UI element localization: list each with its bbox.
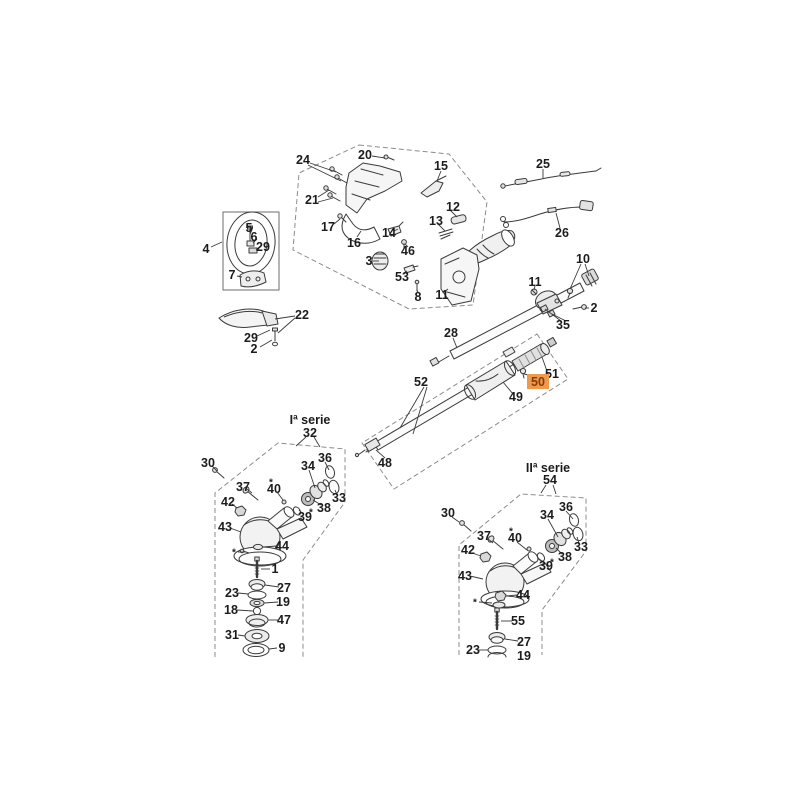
- part-label-13[interactable]: 13: [429, 214, 443, 228]
- leader-line: [211, 242, 222, 247]
- part-label-43-s2[interactable]: 43: [458, 569, 472, 583]
- part-label-38-s1[interactable]: 38: [317, 501, 331, 515]
- leader-line: [269, 648, 277, 649]
- part-label-23-s2[interactable]: 23: [466, 643, 480, 657]
- reference-mark-mark-44-s1: *: [232, 548, 236, 559]
- leader-line: [278, 318, 295, 333]
- part-label-38-s2[interactable]: 38: [558, 550, 572, 564]
- series-title-serie1: Iª serie: [290, 413, 331, 427]
- part-label-24[interactable]: 24: [296, 153, 310, 167]
- part-label-52[interactable]: 52: [414, 375, 428, 389]
- leader-line: [318, 198, 333, 202]
- part-label-37-s1[interactable]: 37: [236, 480, 250, 494]
- part-label-48[interactable]: 48: [378, 456, 392, 470]
- part-label-20[interactable]: 20: [358, 148, 372, 162]
- part-label-19-s1[interactable]: 19: [276, 595, 290, 609]
- part-label-46[interactable]: 46: [401, 244, 415, 258]
- reference-mark-mark-39-s1: *: [309, 508, 313, 519]
- part-label-9[interactable]: 9: [279, 641, 286, 655]
- part-label-50[interactable]: 50: [531, 375, 545, 389]
- part-label-8[interactable]: 8: [415, 290, 422, 304]
- part-label-26[interactable]: 26: [555, 226, 569, 240]
- part-label-35[interactable]: 35: [556, 318, 570, 332]
- part-label-19-s2[interactable]: 19: [517, 649, 531, 663]
- part-label-2-clamp[interactable]: 2: [591, 301, 598, 315]
- part-label-21[interactable]: 21: [305, 193, 319, 207]
- part-label-22[interactable]: 22: [295, 308, 309, 322]
- part-label-16[interactable]: 16: [347, 236, 361, 250]
- part-label-53[interactable]: 53: [395, 270, 409, 284]
- throttle-assembly-drawing: [324, 155, 517, 305]
- part-label-33-s1[interactable]: 33: [332, 491, 346, 505]
- part-label-42-s2[interactable]: 42: [461, 543, 475, 557]
- part-label-30-s1[interactable]: 30: [201, 456, 215, 470]
- part-label-27-s2[interactable]: 27: [517, 635, 531, 649]
- part-label-10[interactable]: 10: [576, 252, 590, 266]
- part-label-12[interactable]: 12: [446, 200, 460, 214]
- part-label-15[interactable]: 15: [434, 159, 448, 173]
- part-label-44-s1[interactable]: 44: [275, 539, 289, 553]
- part-label-11-clamp[interactable]: 11: [528, 275, 541, 289]
- reference-mark-mark-39-s2: *: [550, 558, 554, 569]
- part-label-2-guard[interactable]: 2: [251, 342, 258, 356]
- part-label-36-s1[interactable]: 36: [318, 451, 332, 465]
- part-label-31[interactable]: 31: [225, 628, 239, 642]
- part-label-7[interactable]: 7: [229, 268, 236, 282]
- part-label-27-s1[interactable]: 27: [277, 581, 291, 595]
- part-label-29-handle[interactable]: 29: [256, 240, 270, 254]
- leader-line: [237, 610, 253, 611]
- part-label-25[interactable]: 25: [536, 157, 550, 171]
- part-label-34-s2[interactable]: 34: [540, 508, 554, 522]
- part-label-34-s1[interactable]: 34: [301, 459, 315, 473]
- part-label-4[interactable]: 4: [203, 242, 210, 256]
- leader-line: [257, 330, 270, 336]
- parts-diagram-canvas: 2420152117161446121335381125264562972229…: [0, 0, 800, 800]
- leader-line: [238, 593, 248, 594]
- part-label-37-s2[interactable]: 37: [477, 529, 491, 543]
- part-label-23-s1[interactable]: 23: [225, 586, 239, 600]
- part-label-47[interactable]: 47: [277, 613, 291, 627]
- leader-line: [275, 316, 295, 319]
- reference-mark-mark-washer-s2: *: [473, 598, 477, 609]
- part-label-1[interactable]: 1: [272, 562, 279, 576]
- part-label-30-s2[interactable]: 30: [441, 506, 455, 520]
- part-label-42-s1[interactable]: 42: [221, 495, 235, 509]
- parts-diagram-page: 2420152117161446121335381125264562972229…: [0, 0, 800, 800]
- part-label-33-s2[interactable]: 33: [574, 540, 588, 554]
- part-label-32[interactable]: 32: [303, 426, 317, 440]
- part-label-28[interactable]: 28: [444, 326, 458, 340]
- part-label-44-s2[interactable]: 44: [516, 588, 530, 602]
- reference-mark-mark-40-s2: *: [509, 527, 513, 538]
- leader-line: [505, 639, 518, 641]
- part-label-43-s1[interactable]: 43: [218, 520, 232, 534]
- part-label-3[interactable]: 3: [366, 254, 373, 268]
- part-label-11-throttle[interactable]: 11: [435, 288, 448, 302]
- leader-line: [238, 635, 245, 636]
- part-label-55[interactable]: 55: [511, 614, 525, 628]
- leader-line: [372, 156, 385, 158]
- part-label-14[interactable]: 14: [382, 226, 396, 240]
- leader-line: [318, 190, 329, 197]
- reference-mark-mark-40-s1: *: [269, 478, 273, 489]
- part-label-17[interactable]: 17: [321, 220, 335, 234]
- cables-drawing: [501, 168, 602, 228]
- part-label-18[interactable]: 18: [224, 603, 238, 617]
- leader-line: [308, 165, 341, 181]
- part-label-36-s2[interactable]: 36: [559, 500, 573, 514]
- part-label-54[interactable]: 54: [543, 473, 557, 487]
- leader-line: [260, 340, 272, 347]
- part-label-49[interactable]: 49: [509, 390, 523, 404]
